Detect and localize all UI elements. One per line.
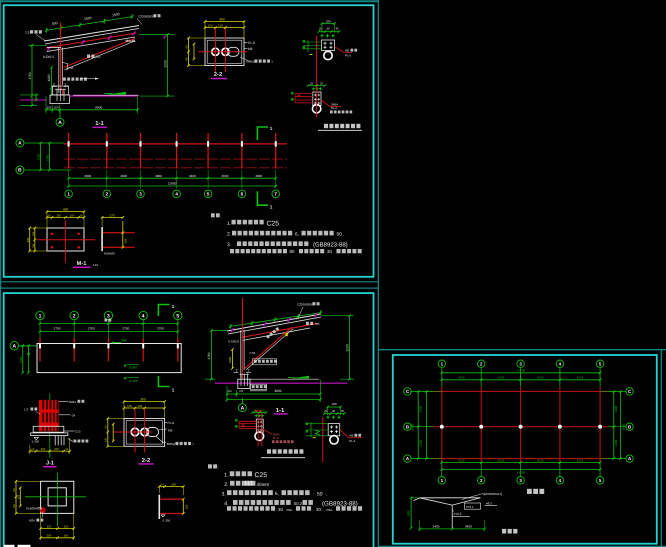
svg-text:0.000: 0.000 [129,366,137,370]
svg-text:J=50: J=50 [67,66,74,70]
svg-text:150: 150 [47,526,52,529]
svg-text:2750: 2750 [207,352,211,359]
svg-text:1.: 1. [224,473,228,479]
svg-text:-24: -24 [71,413,76,417]
svg-text:150: 150 [64,526,69,529]
svg-text:2: 2 [236,369,238,373]
svg-text:150: 150 [32,243,35,248]
svg-text:150: 150 [13,487,16,492]
svg-text:25: 25 [253,409,257,413]
svg-text:PL-6: PL-6 [273,436,279,440]
svg-text:2.: 2. [227,232,231,238]
svg-text:M8: M8 [349,434,353,438]
svg-text:21800: 21800 [168,182,177,186]
svg-text:A: A [12,344,16,350]
svg-text:4M24: 4M24 [69,400,77,404]
svg-text:3400: 3400 [465,525,472,529]
svg-text:40: 40 [326,27,330,31]
svg-text:PL-8: PL-8 [168,421,175,425]
svg-text:35: 35 [341,409,345,413]
svg-text:2000: 2000 [407,510,411,517]
svg-text:150: 150 [70,214,75,217]
svg-text:2700: 2700 [157,326,164,330]
svg-text:1900: 1900 [228,356,232,363]
svg-text:B: B [628,424,631,429]
svg-text:150: 150 [56,214,61,217]
svg-text::: : [218,465,219,470]
svg-text:700: 700 [239,390,244,393]
svg-text:A: A [18,141,22,147]
svg-text:4: 4 [175,192,178,197]
svg-text:200: 200 [41,448,46,451]
svg-text:2400: 2400 [614,405,618,412]
svg-text:200: 200 [54,105,59,109]
svg-text:M6x45: M6x45 [126,39,136,43]
svg-text:50: 50 [317,491,323,497]
svg-text:0.5X0.5: 0.5X0.5 [228,340,239,344]
svg-text:300: 300 [140,398,146,402]
svg-text:): ) [272,60,273,64]
svg-text:PL600X600: PL600X600 [26,506,42,510]
svg-text:150: 150 [13,503,16,508]
svg-text:135: 135 [105,437,108,442]
svg-text:1: 1 [67,192,70,197]
svg-text:(GB8923-88): (GB8923-88) [313,242,348,249]
svg-text:3600: 3600 [222,174,229,178]
svg-text:400: 400 [27,237,30,242]
svg-text:3300: 3300 [45,154,49,161]
svg-text:M-1: M-1 [77,261,87,267]
svg-text:M8: M8 [345,49,349,53]
svg-text:2-2: 2-2 [214,71,222,78]
svg-text:400: 400 [63,208,69,212]
svg-text:2[230X60X14]: 2[230X60X14] [483,492,502,496]
svg-text:#8.3: #8.3 [486,501,492,505]
svg-text:150: 150 [185,504,188,509]
svg-text:3800: 3800 [84,174,91,178]
svg-text:9600: 9600 [622,423,626,430]
svg-text:150: 150 [125,238,128,243]
svg-text:4175: 4175 [498,458,505,462]
svg-text:80: 80 [290,249,295,254]
svg-text:1: 1 [172,388,175,393]
svg-text:5: 5 [207,192,210,197]
svg-text:.: . [326,491,327,497]
svg-text:6,: 6, [295,232,299,237]
svg-text:50: 50 [186,45,189,48]
svg-text:2100: 2100 [36,153,40,160]
svg-text:17700: 17700 [517,368,526,372]
svg-text:PL-8: PL-8 [248,41,255,45]
svg-text:100: 100 [218,24,223,28]
svg-text:1900: 1900 [47,74,51,81]
svg-text:3400: 3400 [120,174,127,178]
svg-text:0.5X0.5: 0.5X0.5 [43,55,54,59]
svg-text::: : [221,213,222,218]
svg-text:PL-6: PL-6 [345,54,351,58]
svg-text:-1.350: -1.350 [31,440,39,444]
svg-text:9600: 9600 [411,423,415,430]
svg-text:100: 100 [208,24,213,28]
svg-text:1: 1 [172,304,175,309]
svg-text:3800: 3800 [255,174,262,178]
svg-text:M8: M8 [168,429,173,433]
svg-text:4175: 4175 [458,375,465,379]
svg-text:#76.1: #76.1 [466,505,474,509]
svg-text:150: 150 [32,231,35,236]
svg-text:3: 3 [107,313,110,319]
svg-text:J-1: J-1 [46,461,54,467]
svg-text:270: 270 [109,213,114,217]
svg-text:2750: 2750 [54,326,61,330]
svg-text:25: 25 [310,82,314,86]
svg-text:6M6x(: 6M6x( [167,442,177,446]
svg-text:5%: 5% [96,55,101,59]
svg-text:3100: 3100 [19,356,23,363]
svg-text:4175: 4175 [498,375,505,379]
svg-text:300: 300 [17,494,20,499]
svg-text:200: 200 [227,390,232,393]
svg-text:25: 25 [319,27,323,31]
svg-text:100: 100 [331,402,336,406]
svg-text:3000: 3000 [95,105,103,109]
svg-text:1: 1 [270,126,273,131]
svg-text:PL-6: PL-6 [349,439,355,443]
svg-text:40mm: 40mm [257,482,270,487]
svg-text:85: 85 [186,57,189,60]
svg-text:1:2: 1:2 [24,408,29,412]
svg-text:2400: 2400 [419,439,423,446]
svg-text:-0.150: -0.150 [128,379,137,383]
svg-text:1750: 1750 [28,72,32,79]
svg-text:3.: 3. [227,242,231,248]
svg-text:2.: 2. [224,482,228,488]
svg-text:1:10: 1:10 [93,263,99,267]
svg-text:105: 105 [138,404,143,408]
svg-text:C25: C25 [267,220,280,227]
svg-text:6,: 6, [275,491,279,496]
svg-text:A: A [58,120,62,126]
svg-text:30: 30 [278,507,283,512]
svg-text:#14.2: #14.2 [454,512,462,516]
svg-text:200: 200 [54,448,59,451]
svg-text:4: 4 [142,313,145,319]
svg-text:1-1: 1-1 [95,121,104,127]
svg-text:N50: N50 [121,339,127,343]
svg-text:35: 35 [335,27,339,31]
svg-text:J=50: J=50 [249,351,256,355]
svg-text:mu.: mu. [287,508,293,512]
svg-text:300: 300 [219,18,225,22]
svg-text:3400: 3400 [189,174,196,178]
svg-text:1-1: 1-1 [276,408,285,414]
svg-text:100: 100 [325,19,330,23]
svg-text:200: 200 [47,105,52,109]
svg-text:3.: 3. [222,491,226,497]
svg-text:3000: 3000 [274,389,281,393]
svg-text:2700: 2700 [88,326,95,330]
svg-text:4175: 4175 [537,458,544,462]
svg-text:A: A [241,405,245,411]
svg-text:300: 300 [64,535,69,538]
svg-text:200: 200 [171,482,176,486]
svg-text:40: 40 [332,409,336,413]
svg-text:2: 2 [73,313,76,319]
svg-text:25: 25 [320,82,324,86]
svg-text:25: 25 [262,409,266,413]
svg-text:2750: 2750 [122,326,129,330]
svg-text:C25: C25 [255,472,268,479]
svg-text:3200: 3200 [163,60,167,68]
svg-text:17700: 17700 [517,470,526,474]
svg-text:4175: 4175 [577,375,584,379]
svg-text:1.5: 1.5 [25,31,30,35]
svg-text:S0.2: S0.2 [294,501,303,506]
svg-text:5%: 5% [315,322,320,326]
svg-text:1: 1 [39,313,42,319]
svg-text:M8: M8 [248,47,253,51]
svg-text:4175: 4175 [577,458,584,462]
svg-text:M24: M24 [29,519,35,523]
svg-text:6: 6 [241,192,244,197]
svg-text:300: 300 [47,535,52,538]
svg-text:B: B [18,168,22,174]
svg-text:CZ50X50X5: CZ50X50X5 [138,15,155,19]
svg-text:PL-6: PL-6 [331,106,337,110]
svg-text:C15: C15 [75,430,81,434]
svg-text:25: 25 [324,409,328,413]
svg-text:3400: 3400 [433,525,440,529]
svg-text:5: 5 [176,313,179,319]
svg-text:CZ50X50X5: CZ50X50X5 [297,303,314,307]
svg-text:30: 30 [327,249,332,254]
svg-text:7: 7 [274,192,277,197]
svg-text:): ) [193,442,194,446]
svg-text:2400: 2400 [614,439,618,446]
svg-text:M16x60: M16x60 [104,252,115,256]
svg-text:B: B [406,424,409,429]
svg-text:3200: 3200 [345,344,349,352]
svg-text:mu.: mu. [327,508,333,512]
svg-text:1: 1 [270,205,273,210]
svg-text:1.: 1. [227,221,231,227]
svg-text:-1.350: -1.350 [162,518,171,522]
svg-text:3800: 3800 [155,174,162,178]
svg-text:150: 150 [127,404,132,408]
svg-text:4175: 4175 [537,375,544,379]
svg-text:2: 2 [248,369,250,373]
svg-text:2-2: 2-2 [142,457,150,464]
svg-text:4175: 4175 [458,458,465,462]
svg-text:2: 2 [106,192,109,197]
svg-text:30: 30 [316,507,321,512]
svg-text:50 .: 50 . [337,232,345,238]
svg-text:3: 3 [139,192,142,197]
svg-text:2400: 2400 [419,405,423,412]
svg-text::: : [242,482,243,487]
